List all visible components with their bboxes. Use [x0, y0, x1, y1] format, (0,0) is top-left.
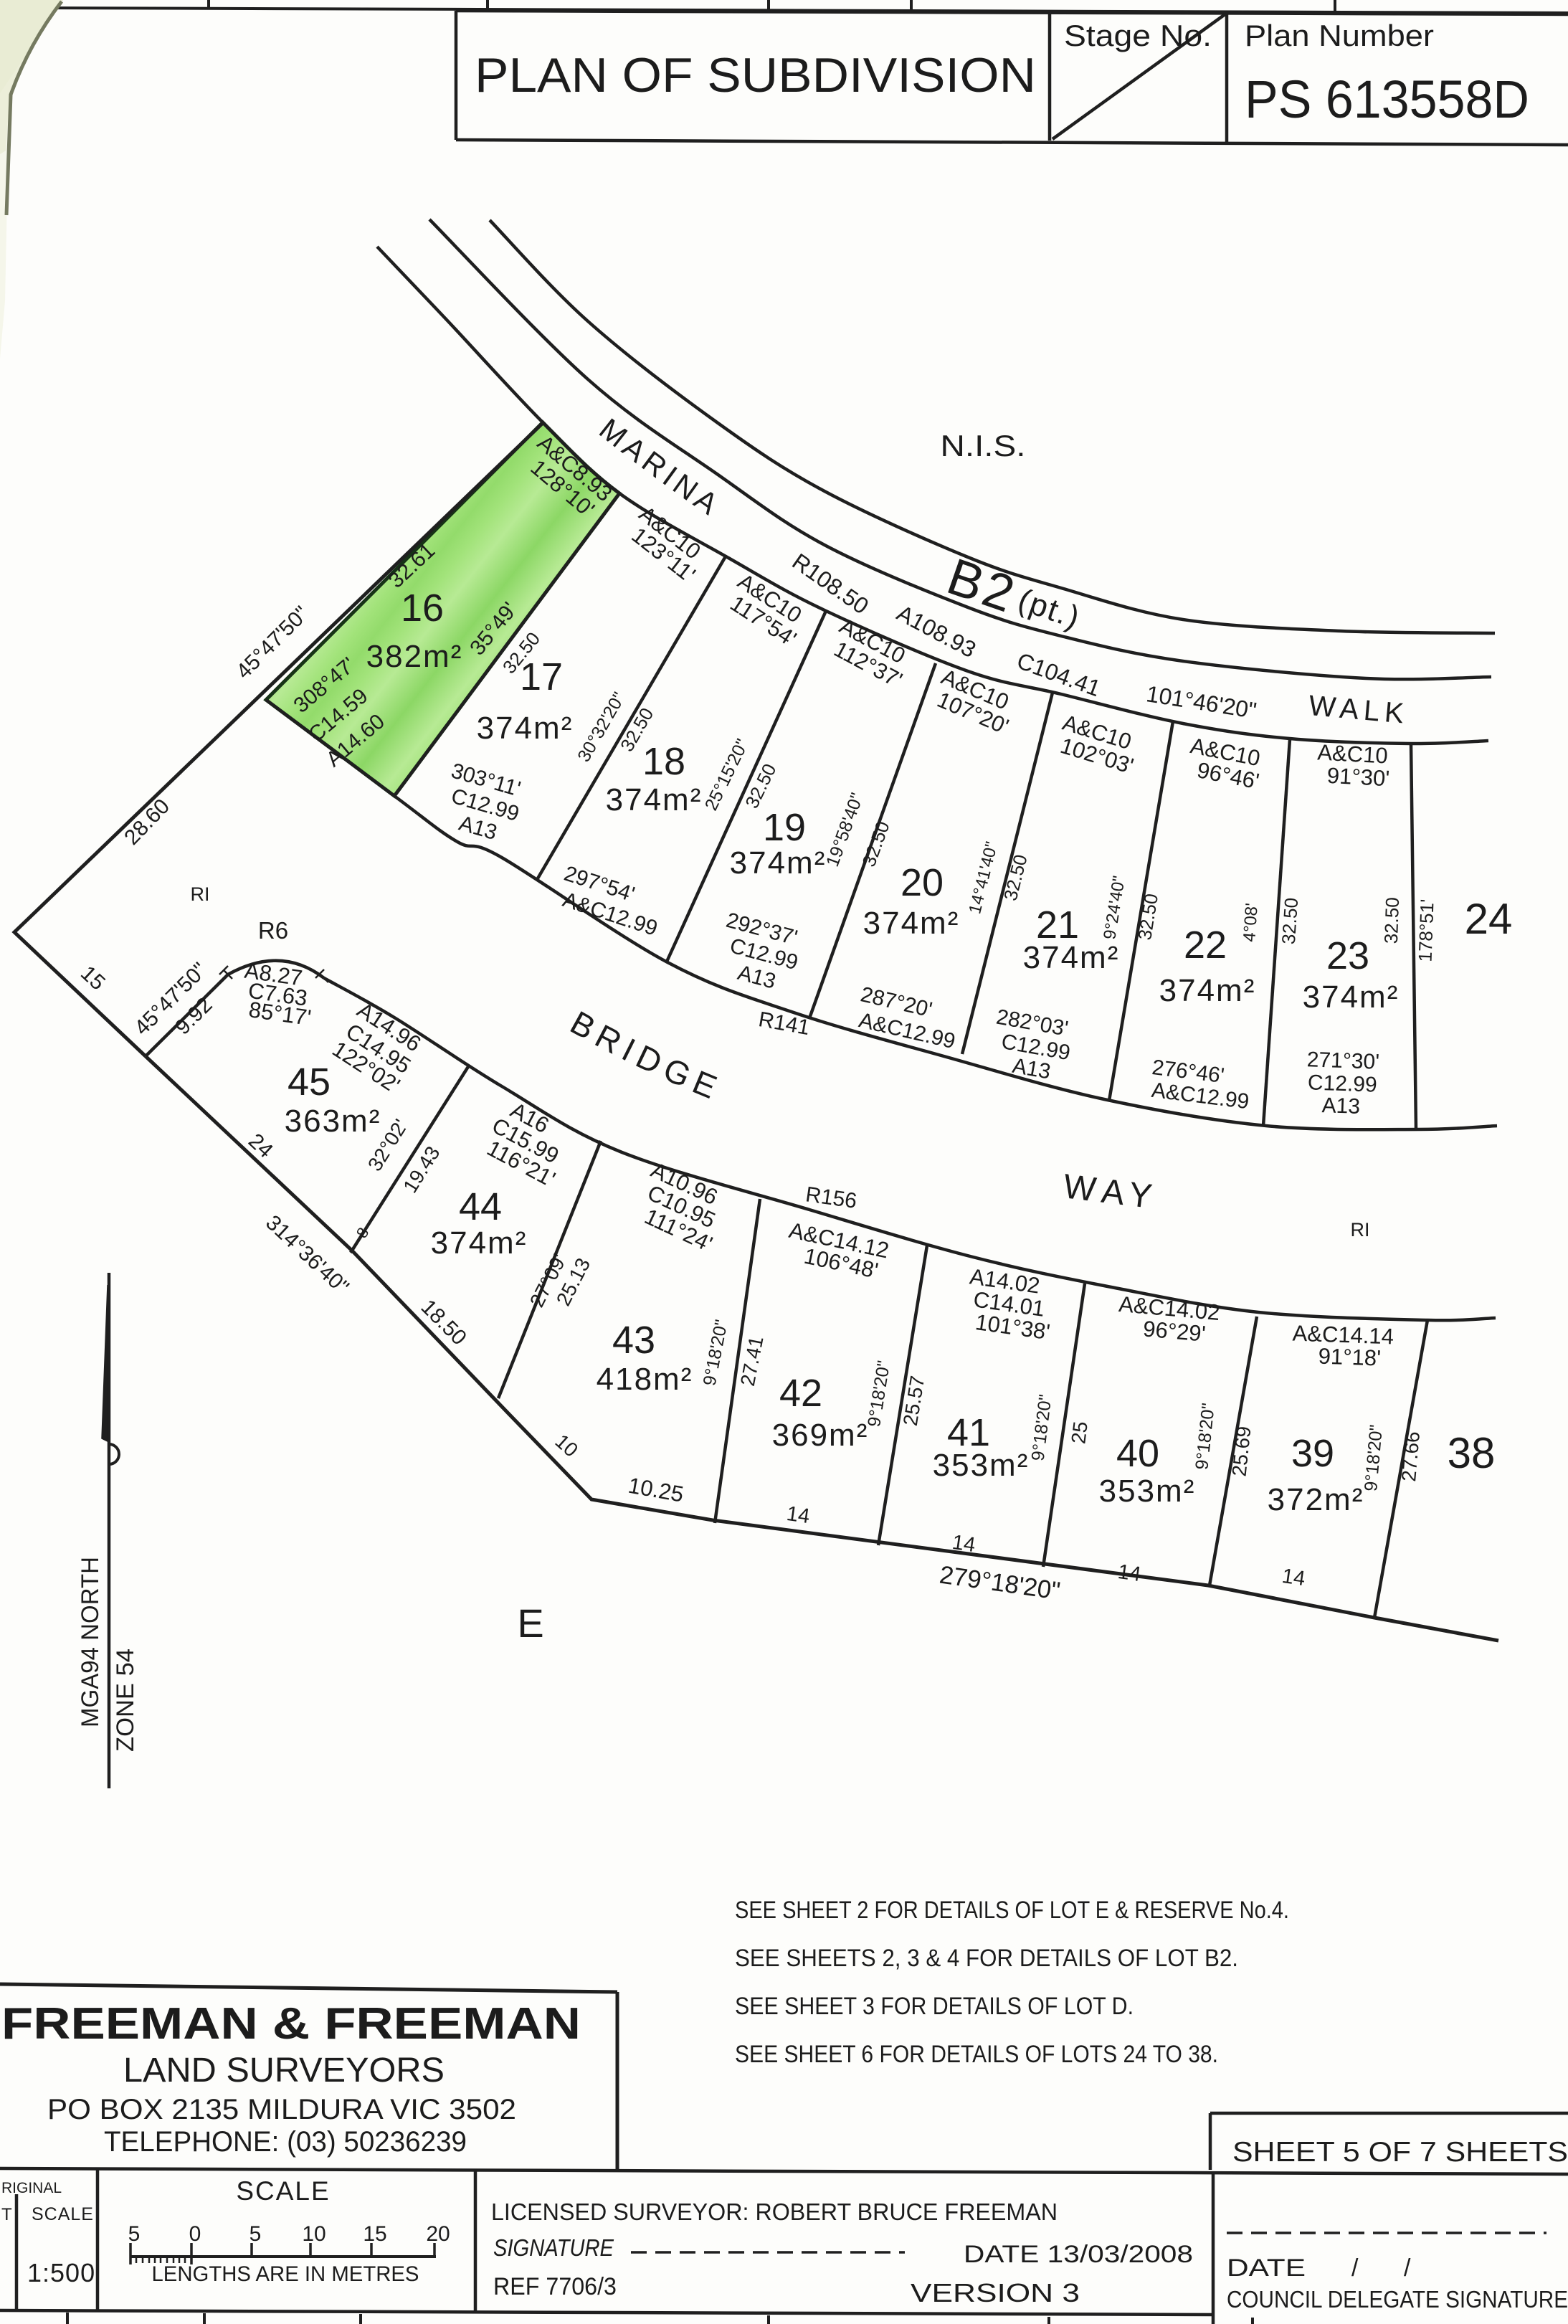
- svg-text:23: 23: [1326, 934, 1369, 977]
- svg-text:372m²: 372m²: [1268, 1482, 1364, 1517]
- svg-text:SEE SHEET 2 FOR DETAILS OF LOT: SEE SHEET 2 FOR DETAILS OF LOT E & RESER…: [735, 1897, 1289, 1924]
- svg-text:FREEMAN & FREEMAN: FREEMAN & FREEMAN: [1, 1999, 581, 2049]
- svg-text:LENGTHS ARE IN METRES: LENGTHS ARE IN METRES: [152, 2262, 419, 2286]
- svg-text:25: 25: [1067, 1420, 1092, 1445]
- svg-text:32.50: 32.50: [1380, 897, 1403, 944]
- svg-text:40: 40: [1116, 1432, 1159, 1475]
- svg-text:353m²: 353m²: [1099, 1474, 1196, 1509]
- svg-text:374m²: 374m²: [431, 1225, 528, 1261]
- svg-text:10: 10: [302, 2222, 326, 2246]
- svg-text:RI: RI: [1351, 1219, 1370, 1241]
- svg-text:/: /: [1404, 2254, 1411, 2282]
- svg-text:DATE: DATE: [1227, 2254, 1306, 2282]
- svg-text:20: 20: [901, 861, 944, 904]
- svg-text:SEE SHEET 6 FOR DETAILS OF LOT: SEE SHEET 6 FOR DETAILS OF LOTS 24 TO 38…: [735, 2041, 1218, 2068]
- svg-text:271°30': 271°30': [1306, 1048, 1379, 1074]
- svg-text:LAND SURVEYORS: LAND SURVEYORS: [123, 2052, 445, 2090]
- svg-text:0: 0: [189, 2222, 201, 2246]
- svg-text:E: E: [517, 1600, 543, 1646]
- svg-text:14: 14: [1280, 1565, 1306, 1590]
- svg-text:4°08': 4°08': [1240, 902, 1262, 942]
- svg-text:374m²: 374m²: [1023, 940, 1120, 975]
- svg-text:TELEPHONE: (03) 50236239: TELEPHONE: (03) 50236239: [104, 2126, 467, 2158]
- svg-text:COUNCIL DELEGATE SIGNATURE: COUNCIL DELEGATE SIGNATURE: [1227, 2286, 1568, 2313]
- svg-text:38: 38: [1448, 1429, 1496, 1477]
- svg-text:374m²: 374m²: [477, 711, 574, 746]
- svg-text:SIGNATURE: SIGNATURE: [493, 2234, 614, 2261]
- svg-text:353m²: 353m²: [933, 1448, 1030, 1483]
- svg-text:19: 19: [763, 806, 806, 849]
- svg-text:R6: R6: [258, 917, 288, 944]
- svg-text:91°30': 91°30': [1326, 763, 1390, 792]
- svg-text:16: 16: [401, 587, 444, 630]
- svg-text:MGA94 NORTH: MGA94 NORTH: [77, 1557, 104, 1727]
- svg-text:374m²: 374m²: [1303, 980, 1400, 1015]
- svg-text:369m²: 369m²: [772, 1418, 869, 1453]
- svg-text:44: 44: [459, 1185, 502, 1228]
- svg-text:14: 14: [785, 1502, 811, 1528]
- svg-text:N.I.S.: N.I.S.: [941, 429, 1026, 463]
- svg-text:SHEET 5 OF 7 SHEETS: SHEET 5 OF 7 SHEETS: [1232, 2137, 1568, 2168]
- svg-text:20: 20: [426, 2222, 450, 2246]
- svg-text:SEE SHEET 3 FOR DETAILS OF LOT: SEE SHEET 3 FOR DETAILS OF LOT D.: [735, 1993, 1134, 2020]
- svg-text:418m²: 418m²: [597, 1362, 693, 1397]
- svg-text:18: 18: [642, 740, 685, 783]
- svg-text:32.50: 32.50: [1278, 897, 1302, 945]
- svg-text:PLAN OF SUBDIVISION: PLAN OF SUBDIVISION: [475, 48, 1036, 103]
- svg-text:178°51': 178°51': [1414, 898, 1438, 962]
- svg-text:VERSION 3: VERSION 3: [911, 2278, 1080, 2308]
- svg-text:374m²: 374m²: [606, 782, 703, 817]
- svg-text:5: 5: [128, 2222, 141, 2246]
- svg-text:15: 15: [363, 2222, 386, 2246]
- svg-text:SCALE: SCALE: [236, 2176, 330, 2206]
- svg-text:5: 5: [250, 2222, 262, 2246]
- svg-text:1:500: 1:500: [27, 2258, 95, 2287]
- svg-text:42: 42: [779, 1372, 822, 1415]
- svg-text:DATE 13/03/2008: DATE 13/03/2008: [964, 2241, 1193, 2268]
- svg-text:363m²: 363m²: [285, 1104, 381, 1139]
- svg-text:/: /: [1351, 2254, 1359, 2282]
- svg-text:PS 613558D: PS 613558D: [1245, 70, 1529, 129]
- svg-text:C12.99: C12.99: [1307, 1071, 1377, 1096]
- svg-text:SEE SHEETS 2, 3 & 4 FOR DETAIL: SEE SHEETS 2, 3 & 4 FOR DETAILS OF LOT B…: [735, 1945, 1238, 1972]
- svg-text:ZONE 54: ZONE 54: [112, 1649, 139, 1752]
- svg-text:LICENSED SURVEYOR: ROBERT BRUC: LICENSED SURVEYOR: ROBERT BRUCE FREEMAN: [491, 2199, 1058, 2225]
- svg-text:24: 24: [1465, 895, 1513, 943]
- svg-text:374m²: 374m²: [1159, 973, 1256, 1008]
- svg-text:A13: A13: [1321, 1094, 1361, 1119]
- svg-text:RI: RI: [191, 883, 210, 905]
- svg-text:Plan Number: Plan Number: [1245, 19, 1434, 52]
- svg-text:14: 14: [951, 1531, 977, 1557]
- svg-text:374m²: 374m²: [730, 845, 827, 881]
- svg-text:382m²: 382m²: [366, 639, 463, 674]
- svg-text:RIGINAL: RIGINAL: [1, 2180, 62, 2196]
- svg-text:39: 39: [1291, 1432, 1334, 1475]
- svg-text:14: 14: [1116, 1560, 1142, 1586]
- svg-text:45: 45: [288, 1061, 331, 1104]
- svg-text:27.66: 27.66: [1397, 1431, 1424, 1483]
- svg-text:SCALE: SCALE: [32, 2204, 94, 2224]
- svg-text:Stage No.: Stage No.: [1064, 19, 1212, 52]
- svg-text:REF 7706/3: REF 7706/3: [493, 2273, 617, 2300]
- svg-text:91°18': 91°18': [1318, 1343, 1381, 1370]
- svg-text:374m²: 374m²: [863, 906, 960, 941]
- svg-text:22: 22: [1184, 924, 1227, 967]
- svg-text:T: T: [1, 2205, 12, 2224]
- svg-text:43: 43: [612, 1319, 655, 1362]
- svg-text:PO BOX 2135 MILDURA VIC: PO BOX 2135 MILDURA VIC 3502: [47, 2094, 516, 2125]
